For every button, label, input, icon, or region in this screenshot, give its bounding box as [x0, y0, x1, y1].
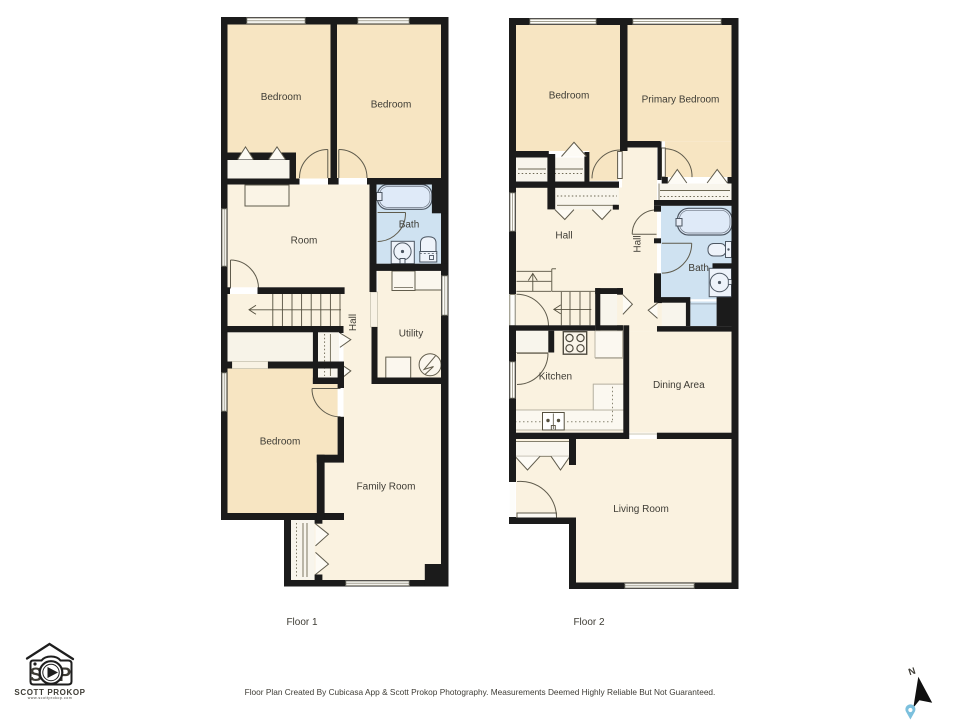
- svg-text:Hall: Hall: [348, 314, 359, 331]
- svg-text:Utility: Utility: [399, 329, 423, 340]
- svg-text:Hall: Hall: [633, 235, 644, 252]
- svg-text:Room: Room: [291, 236, 318, 247]
- svg-text:Primary Bedroom: Primary Bedroom: [642, 95, 720, 106]
- svg-text:Floor 2: Floor 2: [573, 617, 605, 628]
- svg-text:Bedroom: Bedroom: [260, 437, 301, 448]
- svg-text:Floor 1: Floor 1: [286, 617, 318, 628]
- svg-text:Living Room: Living Room: [613, 504, 669, 515]
- svg-text:www.scottprokop.com: www.scottprokop.com: [28, 696, 72, 700]
- svg-text:Bath: Bath: [399, 220, 420, 231]
- svg-text:Bath: Bath: [688, 263, 709, 274]
- svg-text:Bedroom: Bedroom: [261, 92, 302, 103]
- svg-text:Floor Plan Created By Cubicasa: Floor Plan Created By Cubicasa App & Sco…: [245, 687, 716, 697]
- svg-text:Bedroom: Bedroom: [549, 91, 590, 102]
- svg-text:Hall: Hall: [555, 231, 572, 242]
- svg-text:Family Room: Family Room: [357, 482, 416, 493]
- svg-text:Kitchen: Kitchen: [539, 372, 572, 383]
- svg-text:Dining Area: Dining Area: [653, 380, 705, 391]
- svg-text:Bedroom: Bedroom: [371, 100, 412, 111]
